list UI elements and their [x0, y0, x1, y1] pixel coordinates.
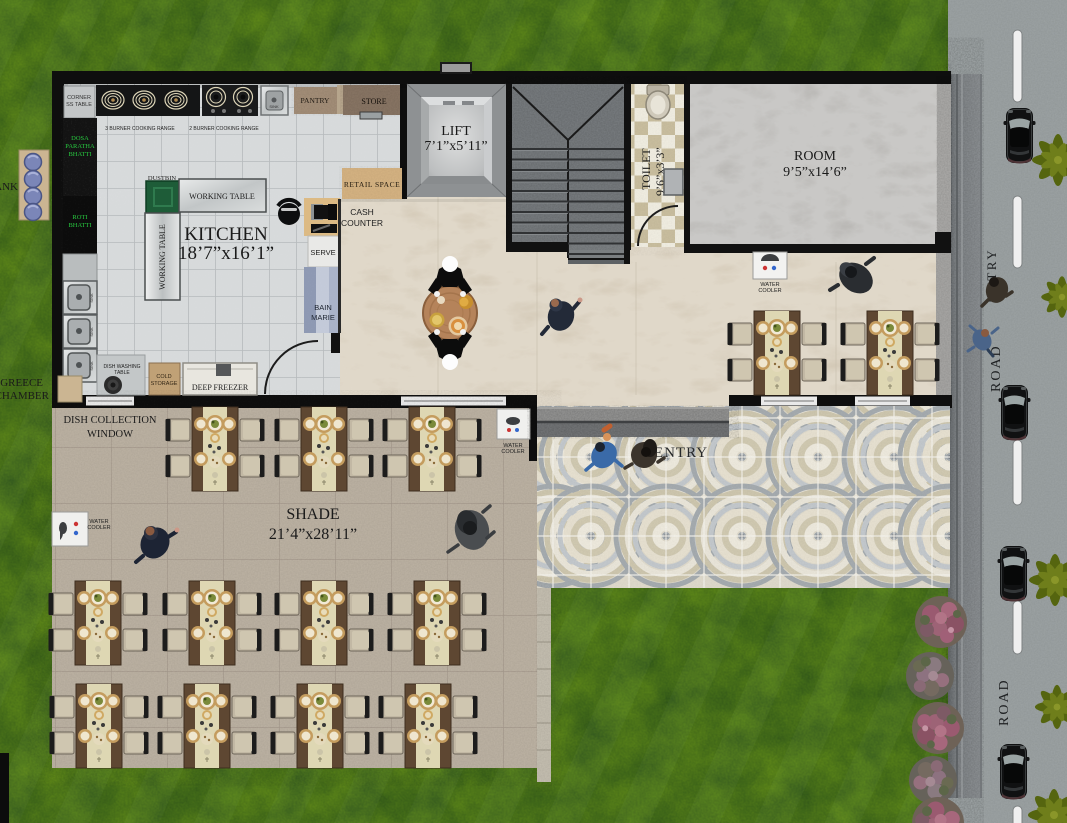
svg-text:STORE: STORE — [361, 97, 386, 106]
svg-text:PARATHA: PARATHA — [65, 143, 95, 150]
svg-text:7’1”x5’11”: 7’1”x5’11” — [424, 139, 487, 154]
svg-text:CASH: CASH — [350, 207, 374, 217]
svg-text:SINK: SINK — [269, 104, 279, 109]
svg-text:CHAMBER: CHAMBER — [0, 390, 50, 402]
svg-text:COOLER: COOLER — [87, 525, 110, 531]
svg-text:TOILET: TOILET — [639, 148, 653, 190]
svg-text:2 BURNER COOKING RANGE: 2 BURNER COOKING RANGE — [189, 126, 259, 132]
svg-text:COUNTER: COUNTER — [341, 218, 383, 228]
svg-text:21’4”x28’11”: 21’4”x28’11” — [269, 526, 357, 543]
svg-text:TABLE: TABLE — [114, 370, 130, 376]
svg-text:GREECE: GREECE — [0, 377, 43, 389]
svg-text:BHATTI: BHATTI — [68, 222, 91, 229]
svg-text:ROOM: ROOM — [794, 149, 837, 164]
svg-text:COLD: COLD — [156, 374, 171, 380]
svg-text:LIFT: LIFT — [441, 124, 471, 139]
svg-text:9’5”x14’6”: 9’5”x14’6” — [783, 165, 847, 180]
svg-text:BAIN: BAIN — [314, 303, 332, 312]
svg-text:SERVE: SERVE — [310, 248, 335, 257]
svg-text:STORAGE: STORAGE — [151, 381, 178, 387]
svg-text:DEEP FREEZER: DEEP FREEZER — [192, 383, 249, 392]
svg-text:3 BURNER COOKING RANGE: 3 BURNER COOKING RANGE — [105, 126, 175, 132]
svg-text:DISH COLLECTION: DISH COLLECTION — [63, 415, 156, 426]
svg-text:WORKING TABLE: WORKING TABLE — [189, 192, 255, 201]
svg-text:DOSA: DOSA — [71, 135, 89, 142]
svg-text:SS TABLE: SS TABLE — [66, 102, 92, 108]
svg-text:ROAD: ROAD — [989, 344, 1004, 392]
svg-text:ROAD: ROAD — [997, 678, 1012, 726]
svg-text:BHATTI: BHATTI — [68, 151, 91, 158]
svg-text:RETAIL SPACE: RETAIL SPACE — [344, 180, 400, 189]
svg-text:MARIE: MARIE — [311, 313, 335, 322]
svg-text:KITCHEN: KITCHEN — [184, 224, 268, 245]
svg-text:18’7”x16’1”: 18’7”x16’1” — [178, 243, 274, 264]
svg-text:PANTRY: PANTRY — [301, 96, 330, 105]
svg-text:TANK: TANK — [0, 181, 18, 193]
svg-text:SINK: SINK — [89, 293, 94, 303]
svg-text:COOLER: COOLER — [758, 288, 781, 294]
svg-text:ROTI: ROTI — [72, 214, 87, 221]
svg-text:COOLER: COOLER — [501, 449, 524, 455]
svg-text:WINDOW: WINDOW — [87, 429, 133, 440]
svg-text:WORKING TABLE: WORKING TABLE — [158, 224, 167, 290]
svg-text:CORNER: CORNER — [67, 95, 91, 101]
svg-text:SHADE: SHADE — [286, 506, 339, 523]
